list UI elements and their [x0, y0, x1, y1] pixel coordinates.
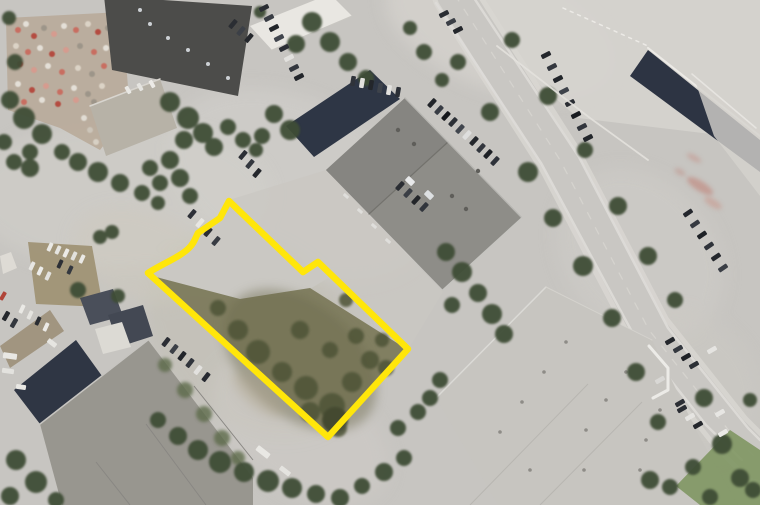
satellite-map-image	[0, 0, 760, 505]
map-viewport	[0, 0, 760, 505]
